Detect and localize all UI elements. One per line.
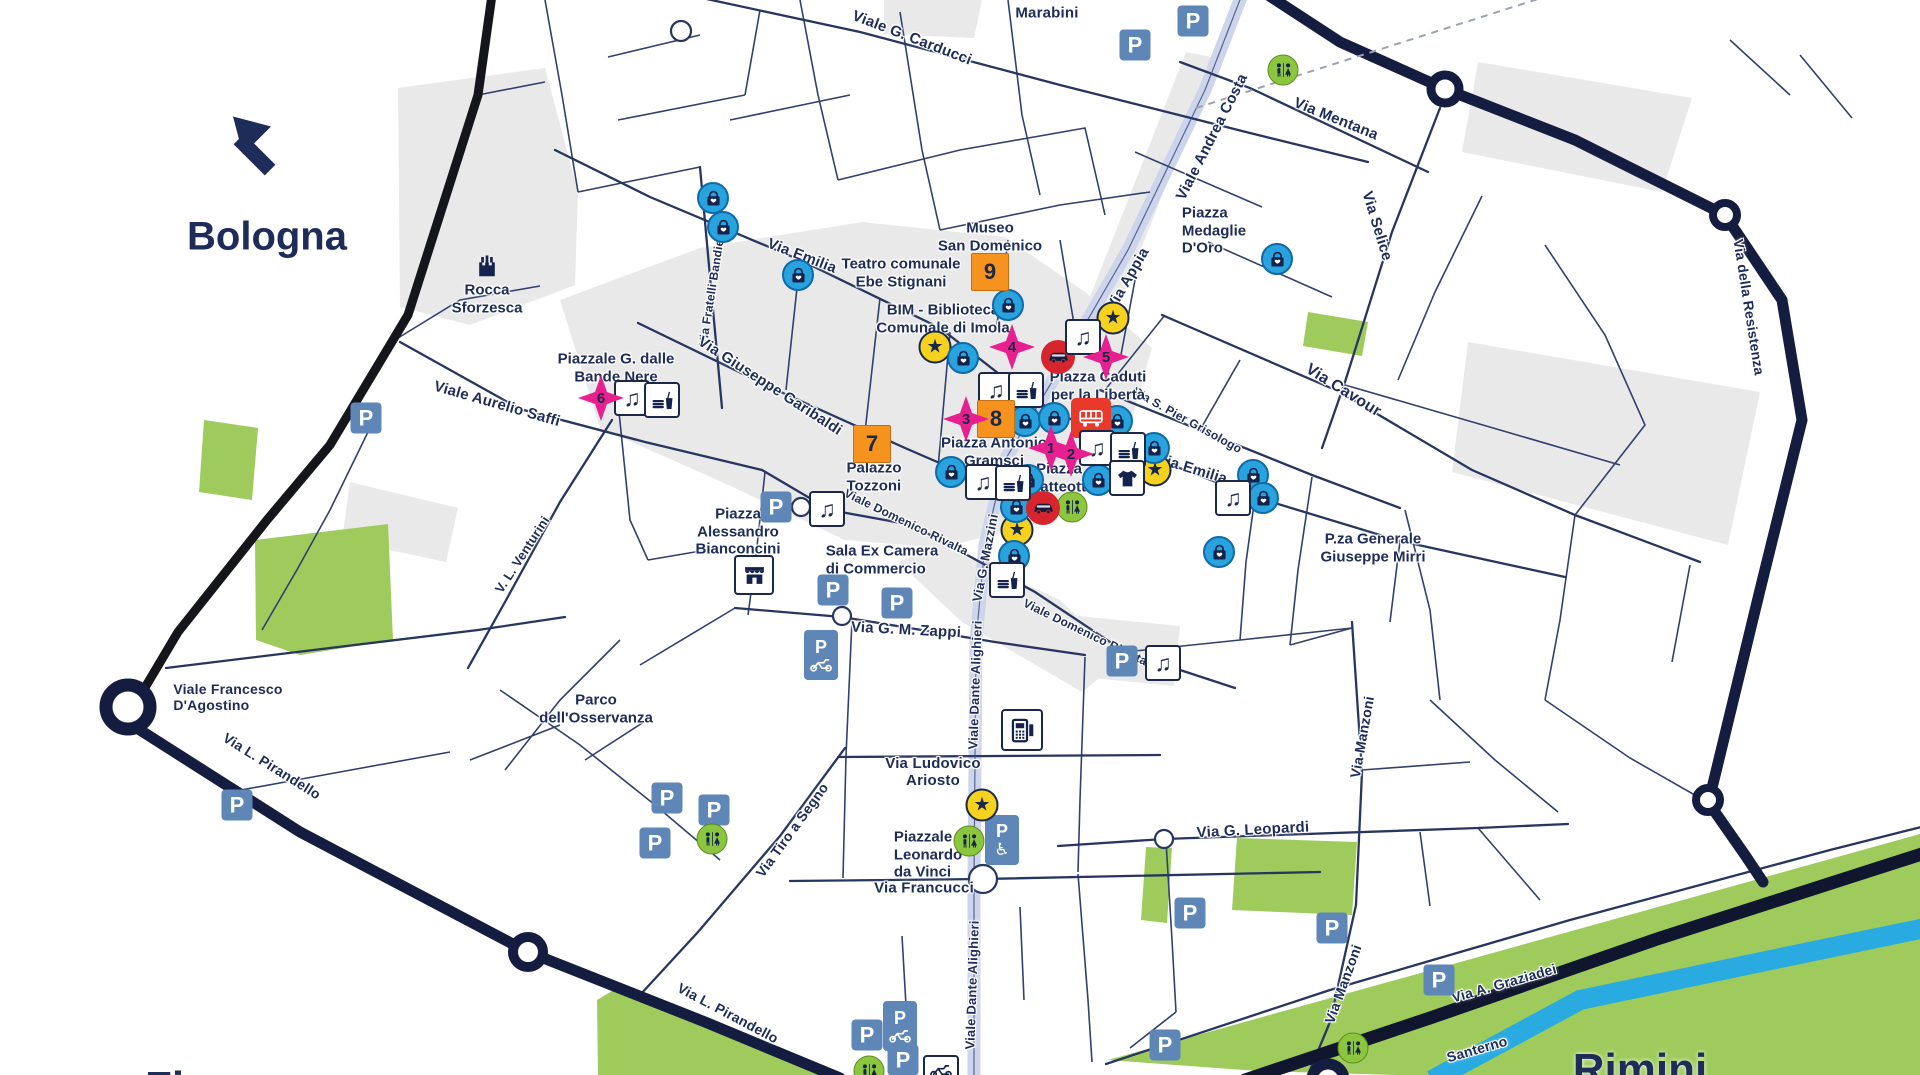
poi-label: P.za Generale Giuseppe Mirri (1320, 530, 1425, 565)
wc-icon (954, 826, 985, 857)
direction-label-rimini: Rimini (1573, 1045, 1707, 1075)
parking-icon: P (1424, 965, 1455, 996)
poi-label: Sala Ex Camera di Commercio (826, 542, 939, 577)
shopping-icon (1261, 243, 1293, 275)
food-drink-icon (644, 382, 680, 418)
parking-icon: P (818, 575, 849, 606)
clothing-icon (1109, 460, 1145, 496)
shopping-icon (992, 289, 1024, 321)
parking-icon: P (222, 790, 253, 821)
phone-icon (1001, 709, 1043, 751)
food-drink-icon (995, 465, 1031, 501)
parking-icon: P (699, 795, 730, 826)
motorcycle-parking-icon: P (883, 1001, 917, 1051)
numbered-marker-orange: 7 (853, 425, 891, 463)
disabled-parking-icon: P♿ (985, 815, 1019, 865)
poi-label: Palazzo Tozzoni (846, 459, 901, 494)
parking-icon: P (1150, 1030, 1181, 1061)
poi-label: Piazzale Leonardo da Vinci (894, 828, 962, 881)
music-icon: ♫ (1065, 319, 1101, 355)
shopping-icon (1247, 482, 1279, 514)
shopping-icon (935, 456, 967, 488)
poi-label: Teatro comunale Ebe Stignani (842, 255, 961, 290)
car-restricted-icon (1026, 491, 1060, 525)
numbered-marker-orange: 9 (971, 253, 1009, 291)
music-icon: ♫ (809, 491, 845, 527)
parking-icon: P (1107, 646, 1138, 677)
parking-icon: P (1120, 30, 1151, 61)
parking-icon: P (351, 403, 382, 434)
poi-label: Rocca Sforzesca (452, 281, 523, 316)
motorcycle-parking-icon: P (804, 630, 838, 680)
city-map[interactable]: Bologna Rimini Firenze MarabiniViale G. … (0, 0, 1920, 1075)
poi-label: Piazza Medaglie D'Oro (1182, 204, 1246, 257)
direction-label-firenze: Firenze (145, 1063, 299, 1075)
shopping-icon (697, 182, 729, 214)
parking-icon: P (640, 828, 671, 859)
direction-label-bologna: Bologna (187, 215, 347, 260)
shopping-icon (782, 259, 814, 291)
street-label: Marabini (1015, 4, 1078, 21)
star-icon: ★ (966, 789, 999, 822)
castle-icon (475, 254, 499, 278)
star-icon: ★ (1097, 302, 1130, 335)
parking-icon: P (761, 492, 792, 523)
poi-label: Museo San Domenico (938, 219, 1042, 254)
market-icon (734, 555, 774, 595)
parking-icon: P (1175, 898, 1206, 929)
music-icon: ♫ (1215, 480, 1251, 516)
wc-icon (1057, 492, 1088, 523)
parking-icon: P (852, 1020, 883, 1051)
poi-label: Parco dell'Osservanza (539, 691, 653, 726)
wc-icon (1338, 1033, 1369, 1064)
parking-icon: P (1317, 913, 1348, 944)
parking-icon: P (1178, 6, 1209, 37)
parking-icon: P (882, 588, 913, 619)
street-label: Via Ludovico Ariosto (885, 755, 980, 790)
shopping-icon (947, 342, 979, 374)
shopping-icon (1203, 536, 1235, 568)
wc-icon (1268, 55, 1299, 86)
music-icon: ♫ (1145, 645, 1181, 681)
poi-label: BIM - Biblioteca Comunale di Imola (876, 301, 1009, 336)
street-label: Viale Francesco D'Agostino (173, 681, 282, 713)
parking-icon: P (652, 783, 683, 814)
street-label: Via Francucci (874, 879, 974, 896)
wc-icon (697, 824, 728, 855)
bologna-direction-arrow-icon (219, 105, 305, 196)
shopping-icon (707, 211, 739, 243)
food-drink-icon (989, 562, 1025, 598)
motorcycle-icon (923, 1055, 959, 1075)
